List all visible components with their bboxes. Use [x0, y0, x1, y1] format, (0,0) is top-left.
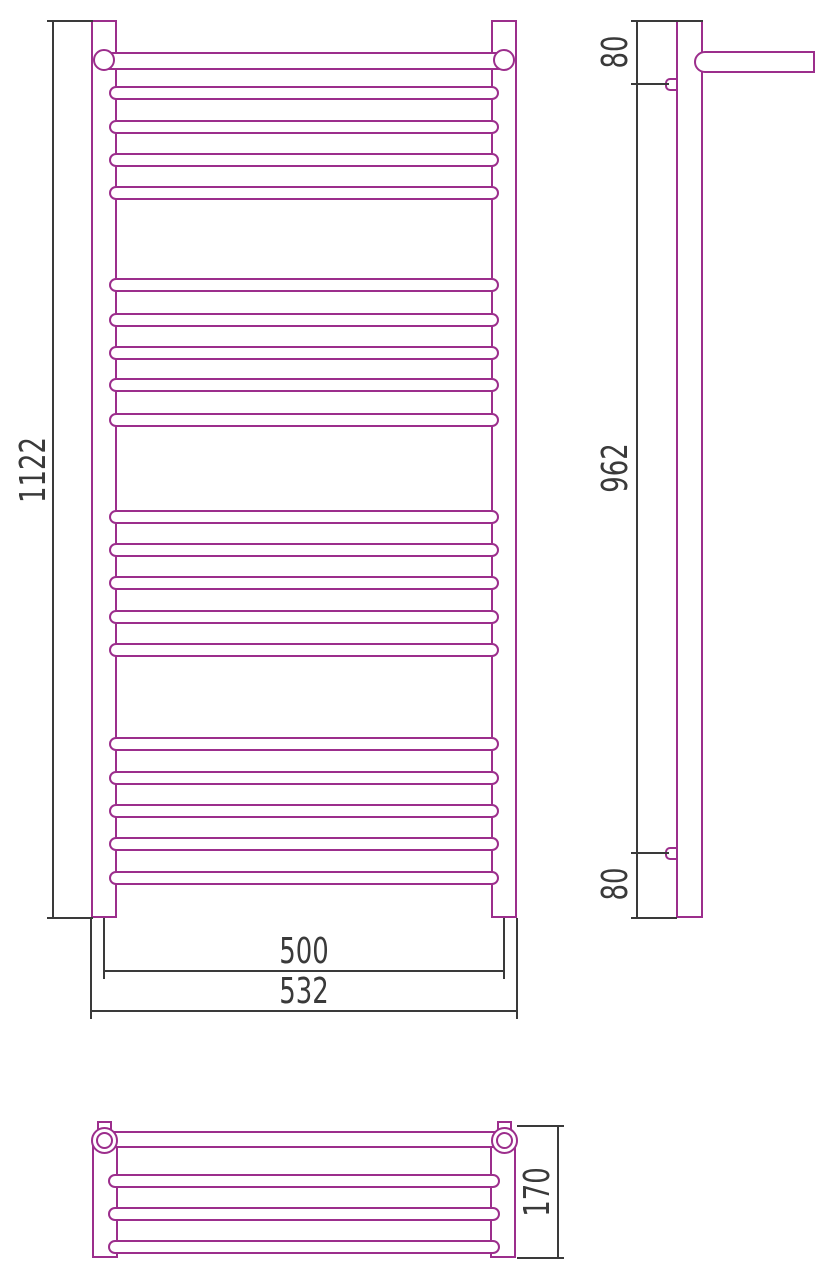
side-dim-line	[636, 20, 638, 919]
towel-bar	[109, 186, 499, 200]
towel-bar	[109, 737, 499, 751]
side-bottom-offset-label: 80	[598, 868, 634, 901]
towel-bar	[109, 610, 499, 624]
towel-bar	[109, 510, 499, 524]
towel-bar	[109, 153, 499, 167]
front-left-fitting-circle	[93, 49, 115, 71]
side-ext-bracket-top	[631, 83, 669, 85]
towel-bar	[109, 413, 499, 427]
side-ext-bottom	[631, 917, 677, 919]
front-width532-label: 532	[279, 974, 328, 1010]
front-height-ext-bottom	[47, 917, 93, 919]
towel-bar	[109, 643, 499, 657]
side-top-offset-label: 80	[598, 36, 634, 69]
towel-bar	[109, 346, 499, 360]
top-depth-label: 170	[520, 1167, 556, 1216]
towel-bar	[109, 576, 499, 590]
top-left-fitting-inner	[96, 1132, 113, 1149]
top-towel-bar	[108, 1240, 500, 1254]
towel-bar	[109, 313, 499, 327]
front-width532-ext-right	[516, 918, 518, 1019]
front-height-label: 1122	[16, 437, 52, 503]
drawing-canvas: 1122 500 532 80 962 80	[0, 0, 835, 1280]
side-ext-top	[631, 20, 703, 22]
top-collector-tube	[103, 1131, 505, 1148]
front-width500-label: 500	[279, 934, 328, 970]
towel-bar	[109, 378, 499, 392]
towel-bar	[109, 771, 499, 785]
side-top-tube	[694, 51, 815, 73]
towel-bar	[109, 837, 499, 851]
top-right-fitting-inner	[496, 1132, 513, 1149]
top-towel-bar	[108, 1174, 500, 1188]
towel-bar	[109, 120, 499, 134]
front-width532-ext-left	[90, 918, 92, 1019]
side-mount-span-label: 962	[598, 443, 634, 492]
side-rail	[676, 20, 703, 918]
side-ext-bracket-bottom	[631, 852, 669, 854]
front-top-bar	[103, 52, 505, 70]
top-towel-bar	[108, 1207, 500, 1221]
towel-bar	[109, 86, 499, 100]
front-right-fitting-circle	[493, 49, 515, 71]
towel-bar	[109, 278, 499, 292]
towel-bar	[109, 804, 499, 818]
towel-bar	[109, 543, 499, 557]
towel-bar	[109, 871, 499, 885]
